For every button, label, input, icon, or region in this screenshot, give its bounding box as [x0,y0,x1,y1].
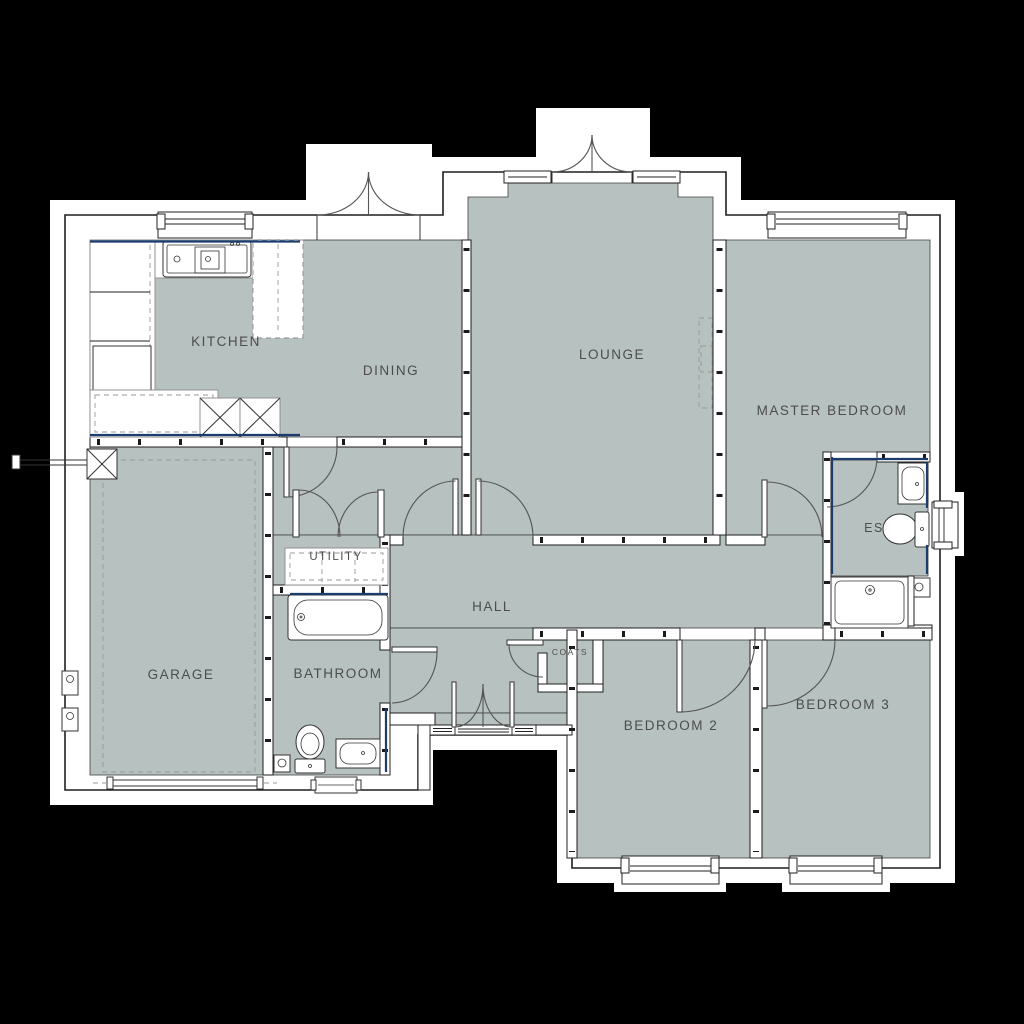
label-ensuite: ES [864,521,884,535]
bathtub-icon [288,595,388,640]
kitchen-sink-icon [163,241,251,277]
label-bathroom: BATHROOM [294,666,383,681]
kitchen-window-icon [157,212,253,238]
bedroom3-window-icon [789,856,882,884]
label-master-bedroom: MASTER BEDROOM [757,403,908,418]
bedroom2-window-icon [621,856,719,884]
label-coats: COATS [552,647,588,657]
shower-tray-icon [831,577,908,628]
room-garage-floor [90,447,263,775]
ensuite-window-icon [932,501,958,549]
label-lounge: LOUNGE [579,347,645,362]
wash-basin-icon [336,739,380,768]
label-dining: DINING [363,363,419,378]
radiator-icon [311,777,361,793]
lounge-bay-window-right-icon [633,171,680,183]
lounge-bay-window-left-icon [504,171,551,183]
room-hall-floor [390,535,823,628]
label-bedroom3: BEDROOM 3 [796,697,891,712]
label-kitchen: KITCHEN [191,334,261,349]
floor-plan-canvas: KITCHEN DINING LOUNGE MASTER BEDROOM ES … [0,0,1024,1024]
label-garage: GARAGE [148,667,215,682]
appliance-space-icon [200,398,280,437]
ensuite-shelf-icon [914,578,930,597]
inner-hall-floor [273,447,463,535]
ensuite-basin-icon [898,463,928,504]
master-window-icon [767,212,907,238]
label-utility: UTILITY [309,551,362,563]
floor-plan-drawing: KITCHEN DINING LOUNGE MASTER BEDROOM ES … [0,0,1024,1024]
garage-flue-icon [87,449,117,479]
label-hall: HALL [472,599,512,614]
label-bedroom2: BEDROOM 2 [624,718,719,733]
room-bedroom3-floor [762,640,930,858]
